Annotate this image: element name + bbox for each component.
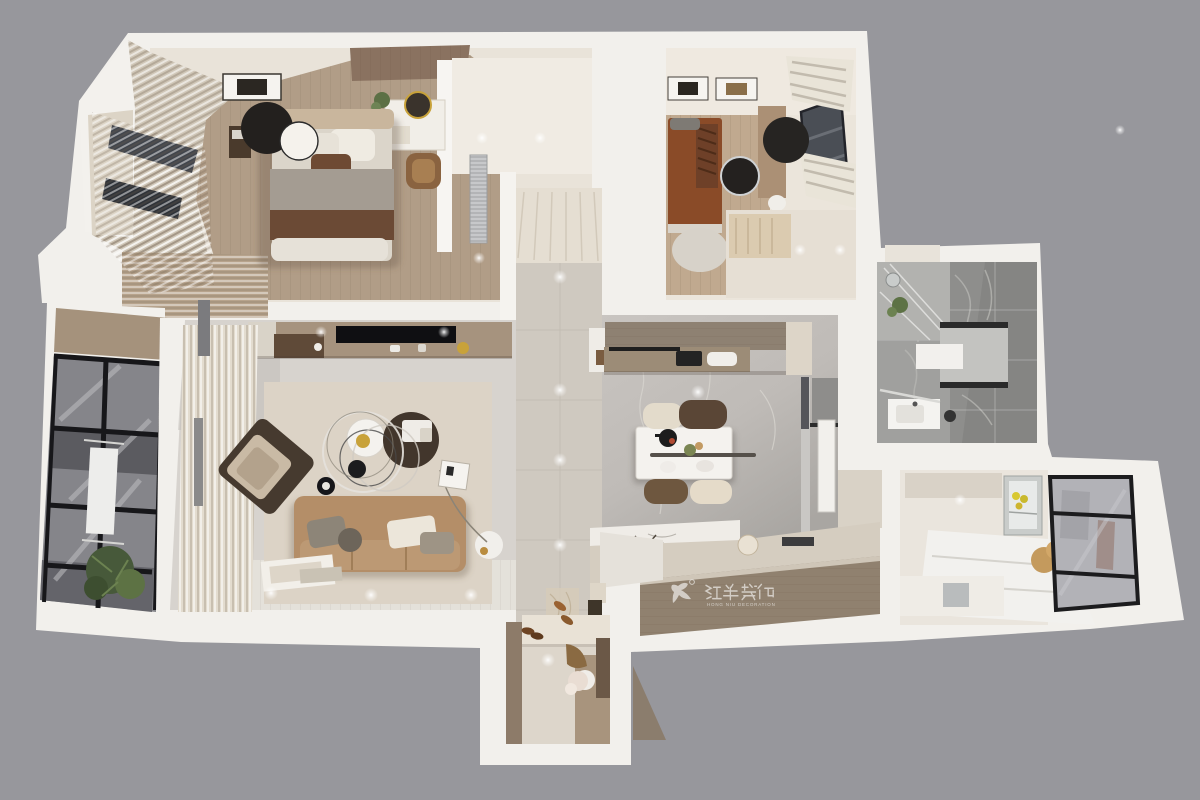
svg-text:HONG NIU DECORATION: HONG NIU DECORATION: [707, 602, 776, 607]
